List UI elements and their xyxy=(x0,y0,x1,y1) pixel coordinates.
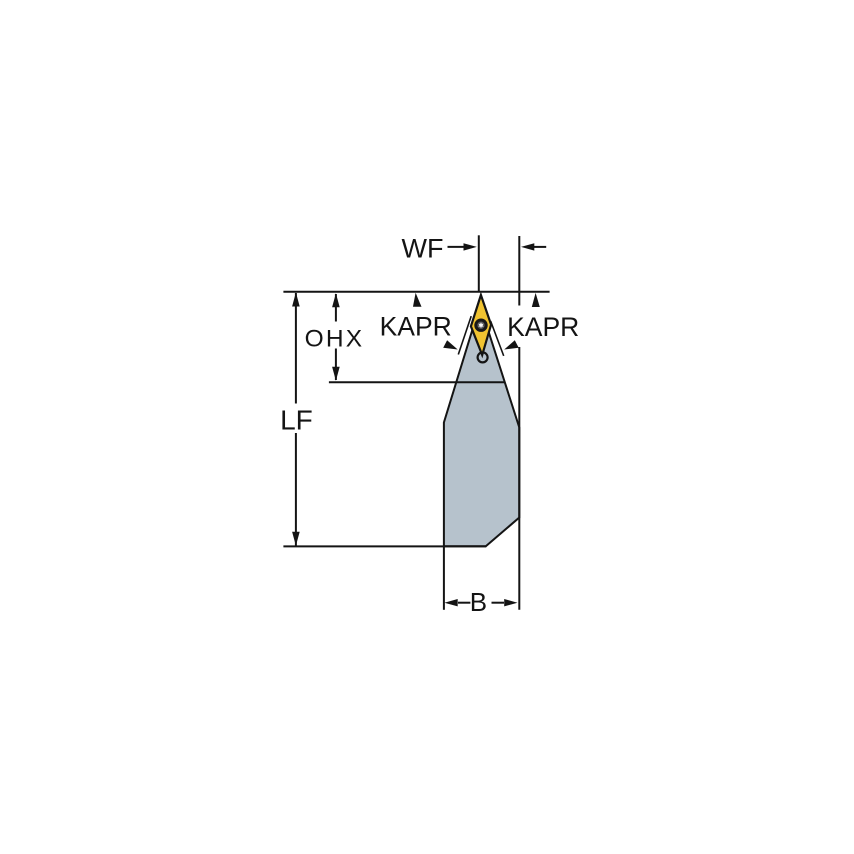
svg-text:KAPR: KAPR xyxy=(507,312,579,342)
svg-text:OHX: OHX xyxy=(305,325,365,352)
svg-text:WF: WF xyxy=(402,233,444,263)
svg-text:KAPR: KAPR xyxy=(380,311,452,341)
svg-text:LF: LF xyxy=(280,404,313,435)
svg-text:B: B xyxy=(470,587,487,617)
